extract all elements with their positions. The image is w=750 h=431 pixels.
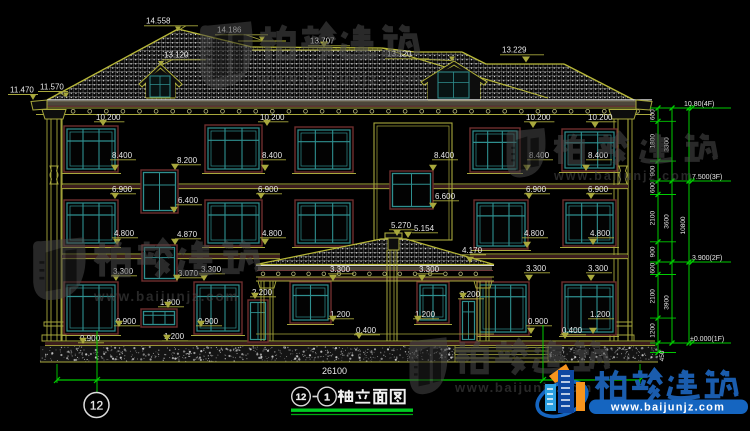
- svg-text:10.200: 10.200: [526, 113, 551, 122]
- svg-text:1.200: 1.200: [590, 310, 611, 319]
- svg-text:7.500(3F): 7.500(3F): [692, 174, 722, 181]
- svg-text:12: 12: [296, 392, 307, 403]
- svg-text:10.80(4F): 10.80(4F): [684, 101, 714, 108]
- svg-text:5.154: 5.154: [414, 224, 435, 233]
- svg-text:4.870: 4.870: [177, 230, 198, 239]
- svg-text:14.558: 14.558: [146, 17, 171, 26]
- svg-text:600: 600: [650, 182, 657, 193]
- svg-text:2100: 2100: [650, 289, 657, 304]
- svg-text:8.400: 8.400: [434, 151, 455, 160]
- svg-text:11.470: 11.470: [10, 86, 34, 95]
- svg-text:26100: 26100: [322, 366, 347, 376]
- svg-text:6.400: 6.400: [178, 196, 199, 205]
- svg-text:11.570: 11.570: [40, 83, 64, 92]
- svg-text:6.600: 6.600: [435, 192, 456, 201]
- svg-text:3.300: 3.300: [419, 265, 440, 274]
- svg-text:3.300: 3.300: [330, 265, 351, 274]
- svg-text:±0.000(1F): ±0.000(1F): [690, 336, 724, 343]
- svg-text:12: 12: [90, 399, 104, 413]
- svg-text:3900: 3900: [664, 295, 671, 310]
- svg-text:www.baijunjz.com: www.baijunjz.com: [93, 289, 239, 304]
- svg-text:10.200: 10.200: [588, 113, 613, 122]
- svg-text:4.800: 4.800: [114, 229, 135, 238]
- svg-text:8.400: 8.400: [262, 151, 283, 160]
- svg-text:13.229: 13.229: [502, 46, 527, 55]
- svg-text:1200: 1200: [650, 323, 657, 338]
- svg-text:4.800: 4.800: [524, 229, 545, 238]
- svg-text:www.baijunjz.com: www.baijunjz.com: [553, 169, 694, 183]
- svg-text:10800: 10800: [680, 216, 687, 234]
- svg-text:5.270: 5.270: [391, 221, 412, 230]
- svg-text:3.300: 3.300: [526, 264, 547, 273]
- svg-text:600: 600: [650, 262, 657, 273]
- svg-text:600: 600: [650, 109, 657, 120]
- svg-text:www.baijunjz.com: www.baijunjz.com: [610, 402, 725, 414]
- svg-text:4.800: 4.800: [262, 229, 283, 238]
- svg-text:1: 1: [324, 392, 330, 404]
- svg-text:450: 450: [659, 350, 666, 361]
- svg-text:3600: 3600: [664, 214, 671, 229]
- svg-text:3.900(2F): 3.900(2F): [692, 255, 722, 262]
- svg-text:0.900: 0.900: [528, 317, 549, 326]
- svg-text:4.800: 4.800: [590, 229, 611, 238]
- svg-text:8.200: 8.200: [177, 156, 198, 165]
- svg-text:8.400: 8.400: [112, 151, 133, 160]
- svg-text:www.baijunjz.com: www.baijunjz.com: [257, 71, 423, 88]
- svg-text:900: 900: [650, 246, 657, 257]
- svg-text:13.120: 13.120: [164, 51, 189, 60]
- svg-text:2100: 2100: [650, 210, 657, 225]
- svg-text:4.170: 4.170: [462, 246, 483, 255]
- svg-text:3.300: 3.300: [588, 264, 609, 273]
